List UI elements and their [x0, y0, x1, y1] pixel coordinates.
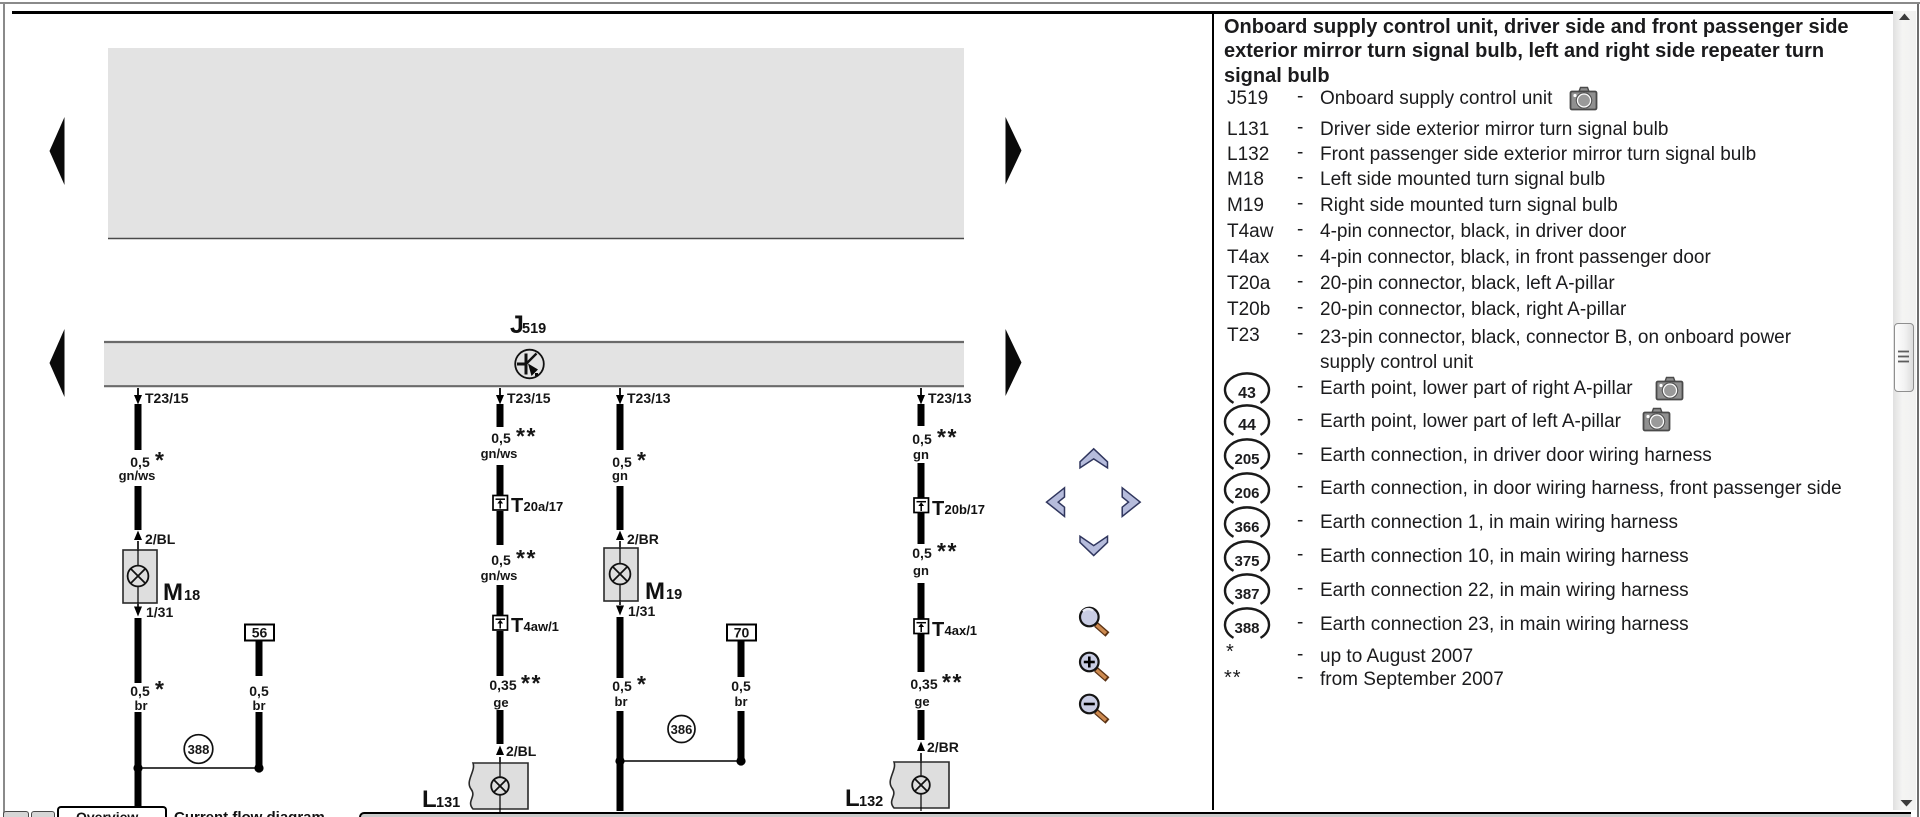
svg-text:205: 205	[1234, 451, 1259, 468]
svg-text:375: 375	[1234, 553, 1259, 570]
svg-text:387: 387	[1234, 586, 1259, 603]
svg-text:43: 43	[1238, 385, 1256, 402]
svg-text:44: 44	[1238, 417, 1256, 434]
svg-text:366: 366	[1234, 519, 1259, 536]
svg-text:206: 206	[1234, 485, 1259, 502]
svg-text:388: 388	[1234, 620, 1259, 637]
